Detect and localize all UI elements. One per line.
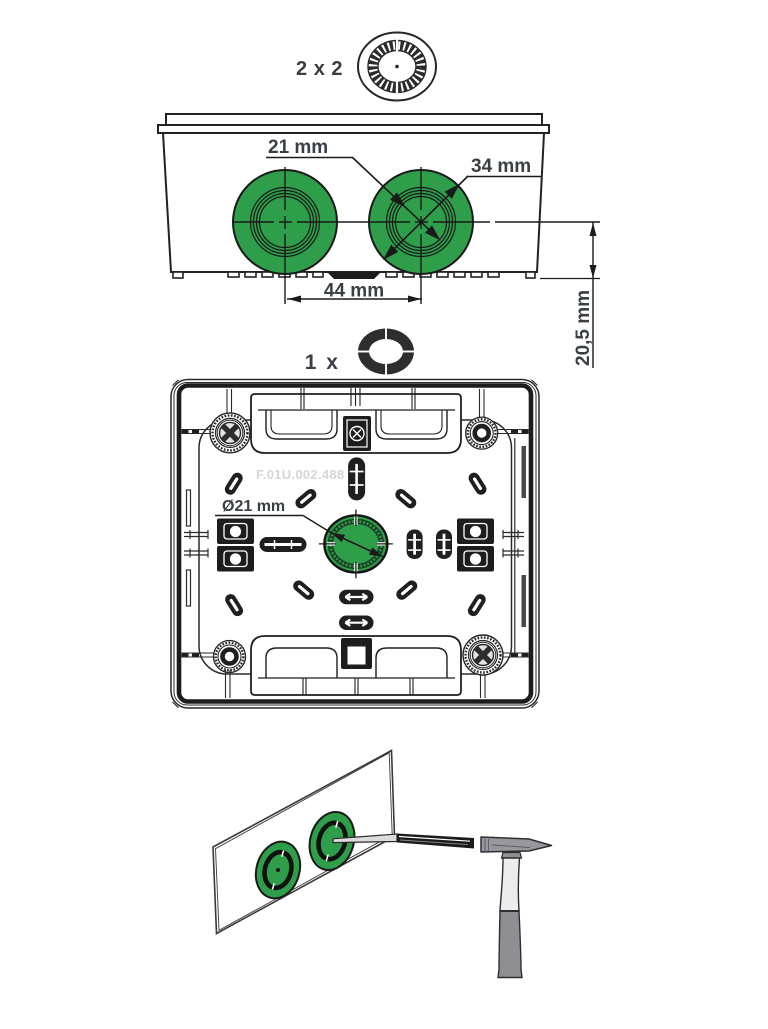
svg-text:1 x: 1 x	[305, 351, 340, 374]
svg-text:Ø21 mm: Ø21 mm	[222, 498, 285, 515]
svg-text:F.01U.002.488: F.01U.002.488	[256, 467, 344, 482]
svg-text:2 x 2: 2 x 2	[296, 58, 343, 80]
svg-text:21 mm: 21 mm	[268, 137, 328, 158]
svg-text:34 mm: 34 mm	[471, 156, 531, 177]
svg-text:44 mm: 44 mm	[324, 281, 384, 302]
svg-text:20,5 mm: 20,5 mm	[573, 290, 594, 366]
